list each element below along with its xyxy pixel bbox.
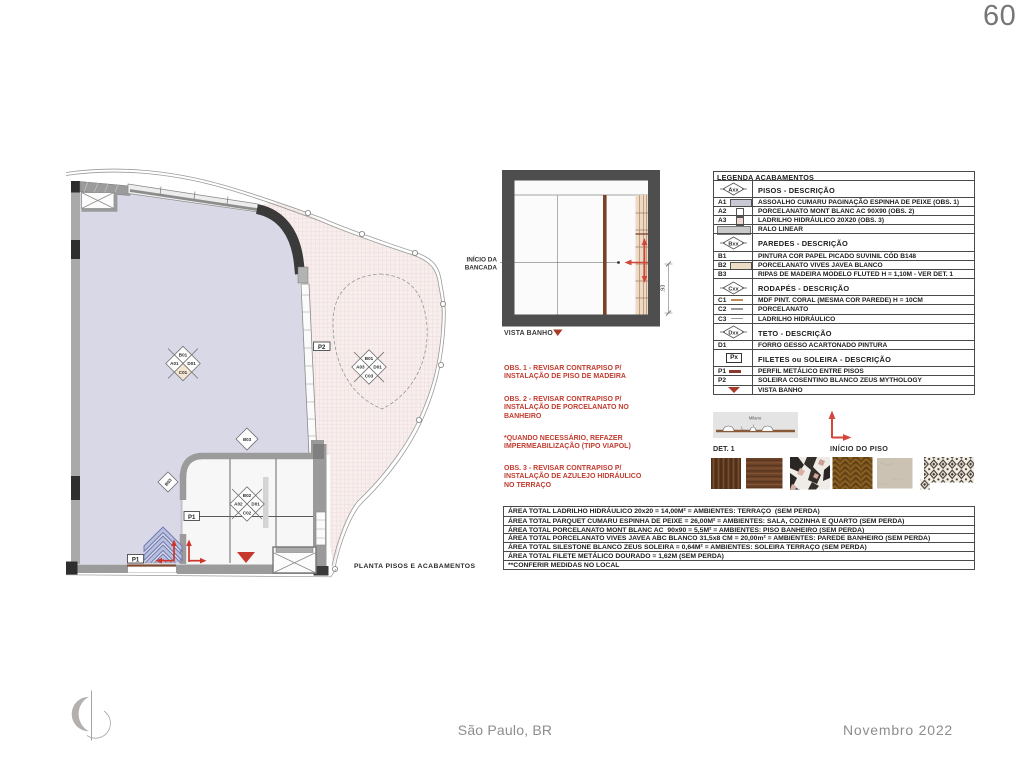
svg-text:Milano: Milano [749,416,762,421]
svg-text:DET. 1: DET. 1 [713,444,735,453]
svg-text:P2: P2 [318,345,326,351]
svg-text:Axx: Axx [728,187,739,193]
svg-text:B03: B03 [243,437,252,442]
svg-text:A03: A03 [356,365,365,370]
svg-text:P1: P1 [188,515,196,521]
svg-text:D01: D01 [251,502,260,507]
svg-text:VISTA BANHO: VISTA BANHO [504,330,553,337]
svg-text:P1: P1 [132,557,140,563]
svg-text:C01: C01 [179,370,188,375]
svg-text:Cxx: Cxx [728,286,739,292]
svg-text:B02: B02 [243,493,252,498]
svg-text:B01: B01 [179,353,188,358]
svg-text:BANCADA: BANCADA [465,265,498,272]
svg-text:A02: A02 [234,502,243,507]
svg-text:A01: A01 [170,361,179,366]
svg-text:INÍCIO DO PISO: INÍCIO DO PISO [830,444,888,453]
svg-text:B01: B01 [365,356,374,361]
svg-text:Bxx: Bxx [728,241,739,247]
svg-text:INÍCIO DA: INÍCIO DA [466,255,497,264]
svg-text:C03: C03 [365,373,374,378]
svg-text:C02: C02 [243,510,252,515]
svg-text:.93: .93 [661,285,667,293]
svg-text:PLANTA PISOS E ACABAMENTOS: PLANTA PISOS E ACABAMENTOS [354,563,475,570]
svg-text:Dxx: Dxx [728,330,739,336]
svg-text:D01: D01 [373,365,382,370]
svg-text:D01: D01 [187,361,196,366]
